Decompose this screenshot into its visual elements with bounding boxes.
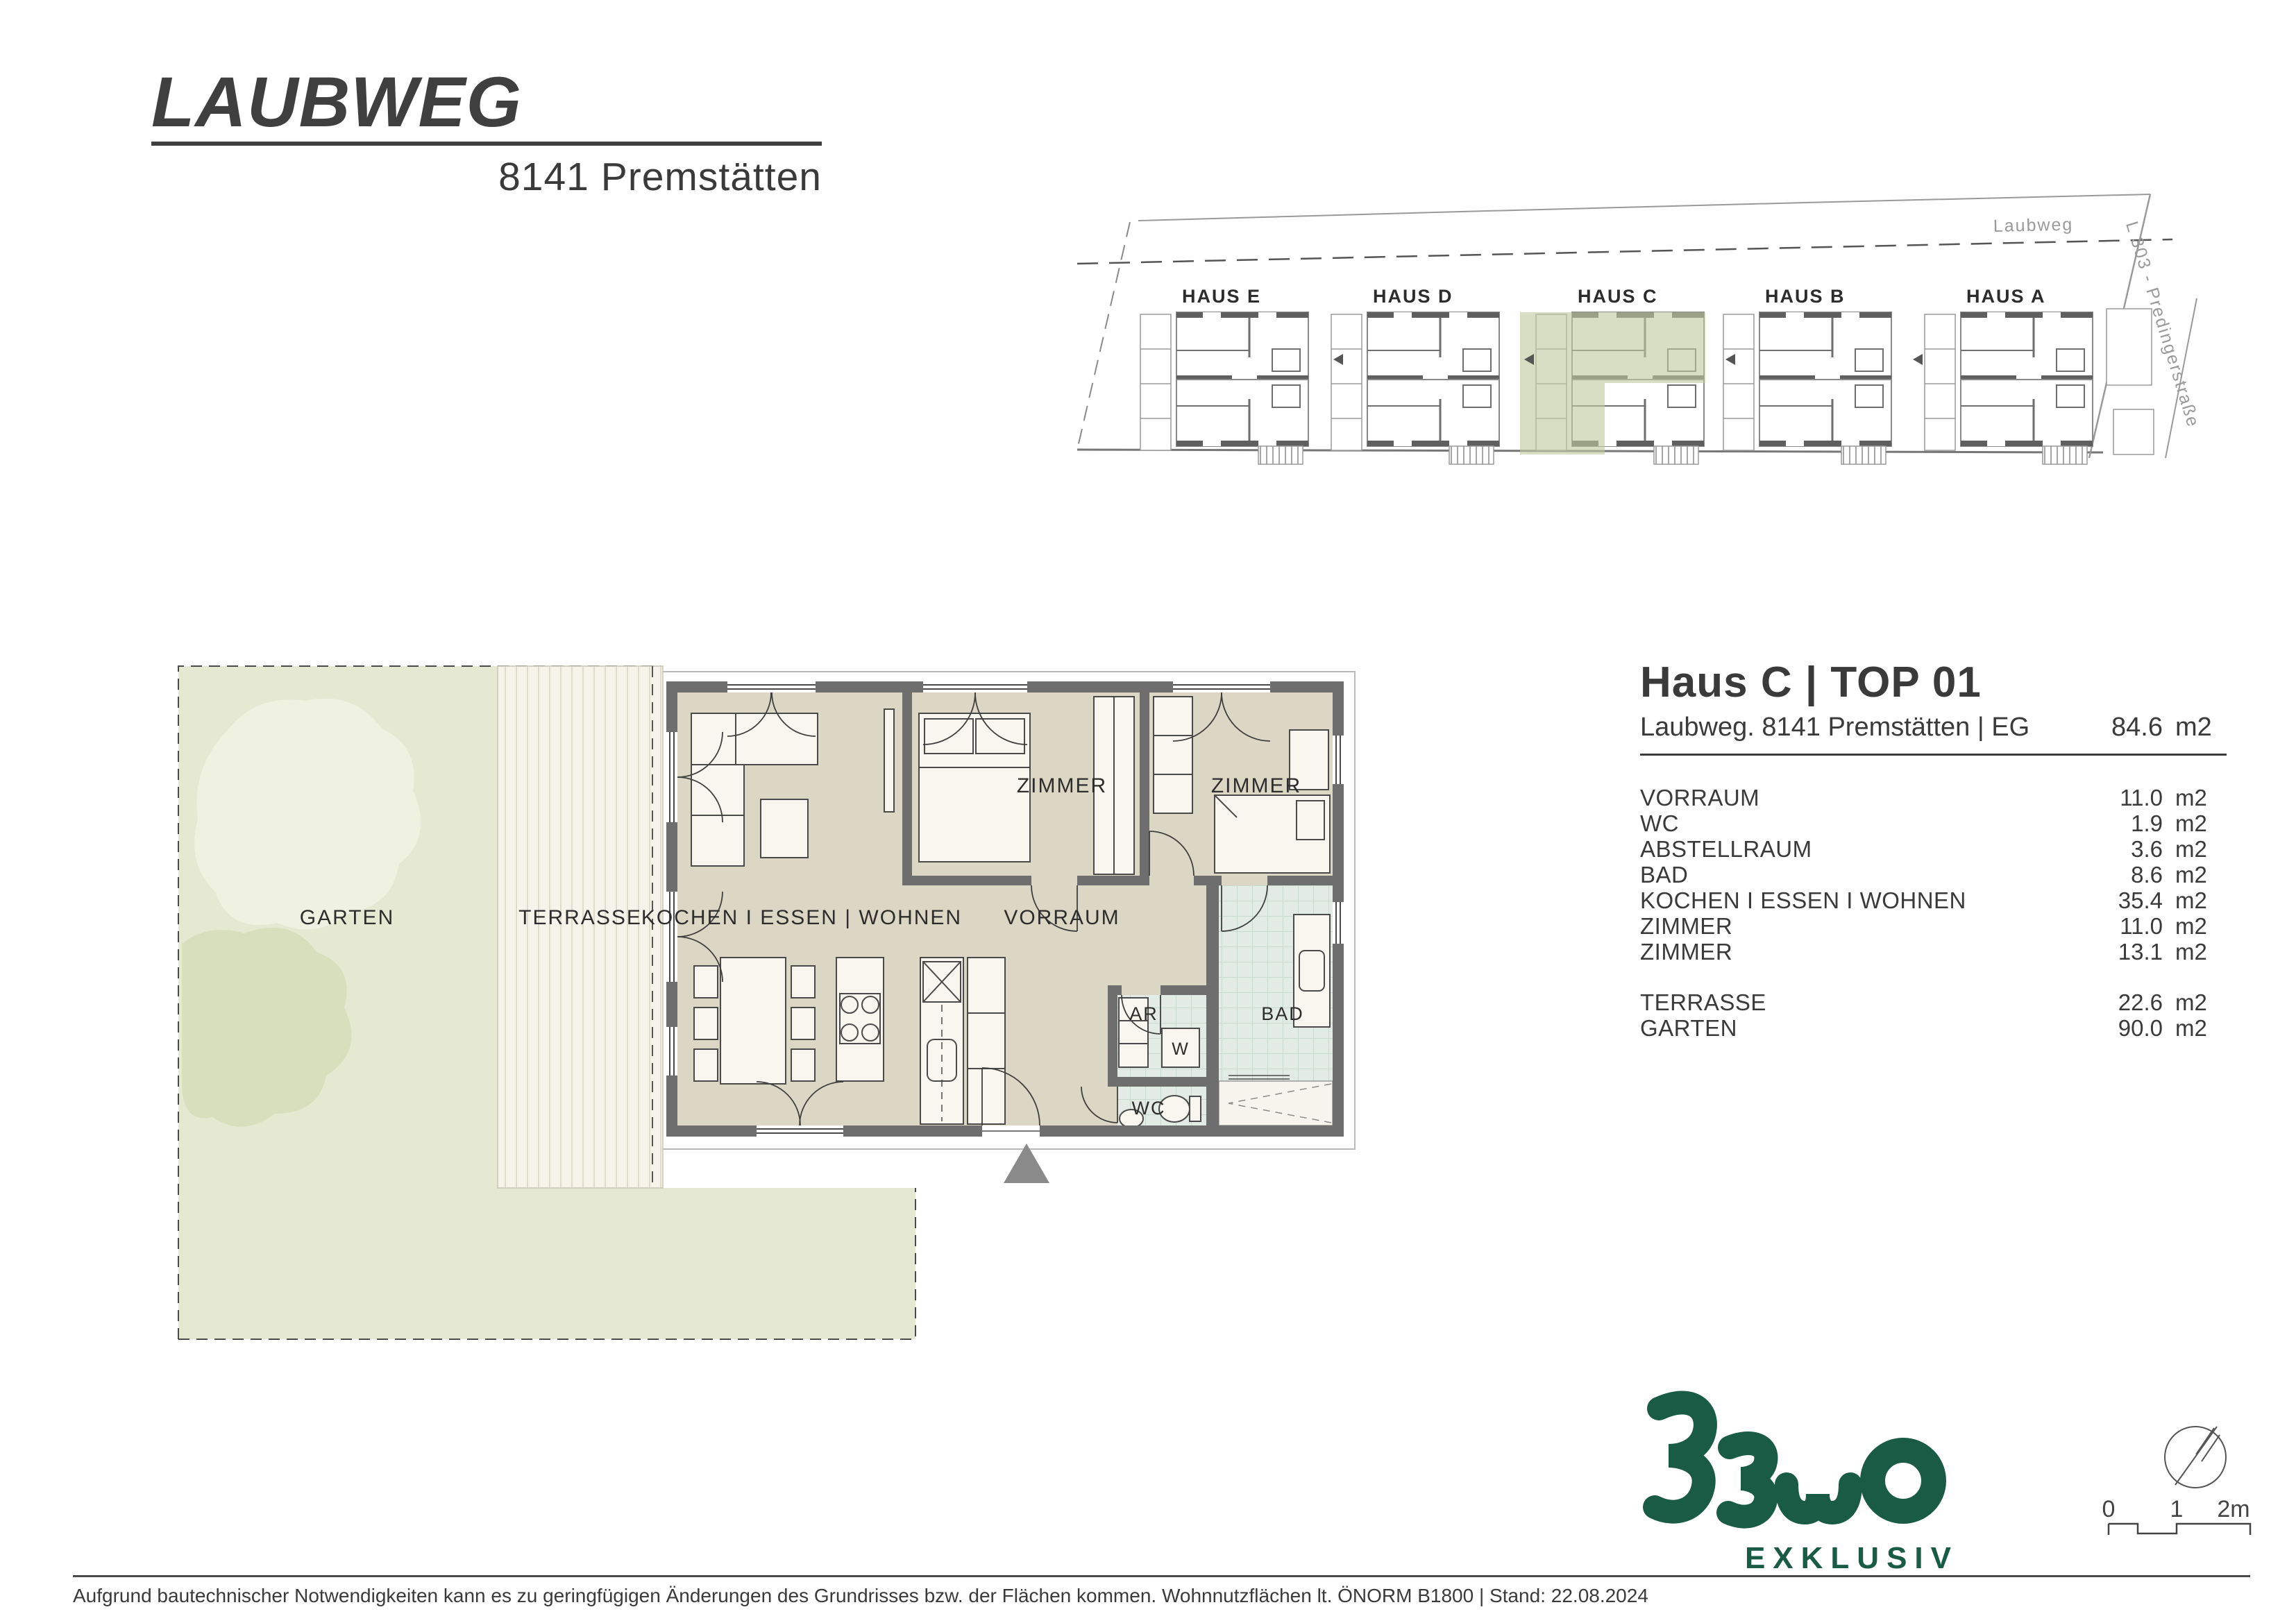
footer-disclaimer: Aufgrund bautechnischer Notwendigkeiten … bbox=[73, 1585, 1648, 1607]
street-label: Laubweg bbox=[1993, 215, 2074, 236]
scale-1: 1 bbox=[2170, 1496, 2184, 1522]
washer-label: W bbox=[1172, 1039, 1190, 1059]
unit-info-panel: Haus C | TOP 01 Laubweg. 8141 Premstätte… bbox=[1640, 658, 2227, 1041]
area-row: BAD 8.6 m2 bbox=[1640, 862, 2227, 887]
site-house-d-label: HAUS D bbox=[1373, 286, 1453, 307]
bewo-logo-mark bbox=[1655, 1402, 1934, 1516]
site-house-a bbox=[1925, 312, 2093, 464]
floor-plan: GARTEN TERRASSE KOCHEN I ESSEN | WOHNEN … bbox=[178, 666, 1355, 1339]
terrasse-label: TERRASSE bbox=[518, 906, 642, 929]
garten-label: GARTEN bbox=[300, 906, 394, 929]
single-bed bbox=[1215, 795, 1330, 873]
area-row: TERRASSE 22.6 m2 bbox=[1640, 989, 2227, 1015]
unit-title: Haus C | TOP 01 bbox=[1640, 658, 2227, 707]
area-row: ABSTELLRAUM 3.6 m2 bbox=[1640, 836, 2227, 862]
radiator bbox=[884, 709, 894, 812]
table-gap bbox=[1640, 965, 2227, 989]
site-house-e-label: HAUS E bbox=[1182, 286, 1261, 307]
bad-label: BAD bbox=[1261, 1003, 1304, 1024]
divider bbox=[1640, 754, 2227, 756]
site-house-c-label: HAUS C bbox=[1578, 286, 1658, 307]
north-indicator bbox=[2165, 1427, 2226, 1488]
plot-boundary-left bbox=[1077, 222, 1130, 450]
unit-address-row: Laubweg. 8141 Premstätten | EG 84.6 m2 bbox=[1640, 713, 2227, 742]
unit-total-area: 84.6 bbox=[2086, 713, 2163, 742]
zimmer1-label: ZIMMER bbox=[1017, 774, 1107, 797]
ar-label: AR bbox=[1129, 1003, 1158, 1024]
site-house-b bbox=[1723, 312, 1891, 464]
scale-2m: 2m bbox=[2217, 1496, 2249, 1522]
vorraum-label: VORRAUM bbox=[1004, 906, 1120, 929]
site-house-e bbox=[1140, 312, 1308, 464]
company-logo: EXKLUSIV bbox=[1631, 1375, 1964, 1590]
street-line bbox=[1077, 239, 2172, 264]
garage-block-2 bbox=[2113, 409, 2154, 454]
dining-table bbox=[720, 958, 786, 1084]
area-table: VORRAUM 11.0 m2 WC 1.9 m2 ABSTELLRAUM 3.… bbox=[1640, 785, 2227, 1041]
unit-address: Laubweg. 8141 Premstätten | EG bbox=[1640, 713, 2086, 742]
site-house-d bbox=[1331, 312, 1499, 464]
area-row: WC 1.9 m2 bbox=[1640, 810, 2227, 836]
entrance-opening bbox=[982, 1125, 1040, 1137]
scale-0: 0 bbox=[2102, 1496, 2116, 1522]
area-row: KOCHEN I ESSEN I WOHNEN 35.4 m2 bbox=[1640, 887, 2227, 913]
area-row: GARTEN 90.0 m2 bbox=[1640, 1015, 2227, 1041]
area-row: VORRAUM 11.0 m2 bbox=[1640, 785, 2227, 810]
kitchen-island bbox=[836, 958, 884, 1081]
double-bed bbox=[919, 713, 1030, 862]
logo-tagline: EXKLUSIV bbox=[1745, 1541, 1959, 1575]
kitchen-cabinets bbox=[920, 958, 1005, 1124]
garage-block bbox=[2107, 309, 2152, 385]
plan-sheet: LAUBWEG 8141 Premstätten bbox=[0, 0, 2296, 1623]
area-row: ZIMMER 11.0 m2 bbox=[1640, 913, 2227, 939]
area-row: ZIMMER 13.1 m2 bbox=[1640, 939, 2227, 965]
site-house-b-label: HAUS B bbox=[1765, 286, 1846, 307]
wc-label: WC bbox=[1132, 1098, 1166, 1119]
unit-total-area-unit: m2 bbox=[2175, 713, 2227, 742]
scale-bar: 0 1 2m bbox=[2102, 1496, 2250, 1535]
coffee-table bbox=[761, 799, 808, 858]
footer-divider bbox=[73, 1575, 2250, 1577]
zimmer2-label: ZIMMER bbox=[1211, 774, 1301, 797]
shower bbox=[1219, 1081, 1333, 1125]
site-plan: HAUS E HAUS D HAUS C HAUS B HAUS A Laubw… bbox=[1077, 194, 2203, 464]
kitchen-label: KOCHEN I ESSEN | WOHNEN bbox=[641, 906, 962, 929]
site-house-a-label: HAUS A bbox=[1966, 286, 2046, 307]
